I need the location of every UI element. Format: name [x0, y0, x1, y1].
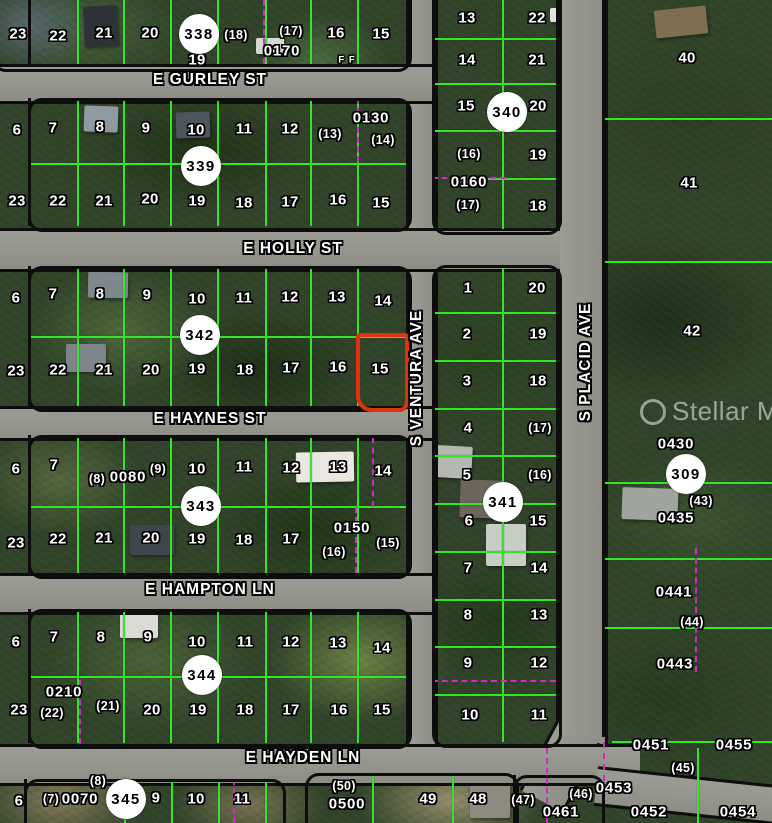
block-number-badge: 343 — [181, 486, 221, 526]
lot-number-label: 7 — [50, 457, 59, 474]
lot-number-label: 13 — [530, 607, 547, 624]
survey-dashed-line — [355, 507, 357, 573]
lot-number-label: 6 — [12, 290, 21, 307]
block-number-badge: 340 — [487, 92, 527, 132]
lot-line — [452, 773, 454, 823]
parcel-id-label: 0080 — [110, 469, 147, 486]
lot-number-label: 4 — [464, 420, 473, 437]
lot-line — [432, 130, 556, 132]
parcel-boundary-line — [28, 609, 31, 743]
lot-number-label: 21 — [95, 25, 112, 42]
lot-line — [357, 0, 359, 64]
lot-number-alt-label: (15) — [376, 536, 399, 550]
lot-number-label: 5 — [463, 467, 472, 484]
lot-number-label: 18 — [235, 532, 252, 549]
lot-number-label: 10 — [188, 461, 205, 478]
lot-number-label: 8 — [464, 607, 473, 624]
lot-line — [432, 38, 556, 40]
lot-number-label: 17 — [282, 360, 299, 377]
lot-number-label: 22 — [49, 193, 66, 210]
lot-number-label: 16 — [329, 359, 346, 376]
lot-number-alt-label: (14) — [371, 133, 394, 147]
lot-line — [602, 558, 772, 560]
lot-line — [432, 408, 556, 410]
lot-number-label: 20 — [141, 25, 158, 42]
lot-number-label: 7 — [464, 560, 473, 577]
lot-number-label: 19 — [189, 702, 206, 719]
lot-number-label: 12 — [282, 634, 299, 651]
lot-line — [432, 694, 556, 696]
roof-patch — [486, 524, 526, 566]
lot-number-label: 20 — [528, 280, 545, 297]
lot-number-label: 19 — [188, 52, 205, 69]
lot-number-label: 15 — [372, 195, 389, 212]
lot-line — [372, 773, 374, 823]
lot-number-label: 11 — [237, 634, 253, 651]
lot-number-label: 17 — [281, 194, 298, 211]
lot-line — [170, 98, 172, 226]
lot-number-label: 18 — [529, 373, 546, 390]
lot-number-label: 40 — [678, 50, 695, 67]
lot-number-label: 10 — [187, 791, 204, 808]
lot-number-label: 20 — [142, 362, 159, 379]
lot-line — [432, 599, 556, 601]
lot-number-label: 20 — [529, 98, 546, 115]
lot-number-label: 8 — [96, 286, 105, 303]
lot-number-label: 6 — [12, 634, 21, 651]
lot-number-label: 8 — [96, 119, 105, 136]
lot-number-label: 22 — [49, 531, 66, 548]
lot-line — [265, 779, 267, 823]
parcel-boundary-line — [24, 779, 27, 823]
lot-number-label: 23 — [8, 193, 25, 210]
lot-number-label: 8 — [97, 629, 106, 646]
lot-number-alt-label: (8) — [90, 774, 106, 788]
lot-number-label: 16 — [329, 192, 346, 209]
lot-number-alt-label: (7) — [43, 792, 59, 806]
lot-number-label: 10 — [461, 707, 478, 724]
lot-number-label: 42 — [683, 323, 700, 340]
lot-number-label: 22 — [49, 28, 66, 45]
lot-number-label: 14 — [374, 463, 391, 480]
lot-line — [77, 98, 79, 226]
lot-number-label: 6 — [12, 461, 21, 478]
lot-number-label: 19 — [529, 326, 546, 343]
lot-number-label: 12 — [282, 460, 299, 477]
street-label-e-hampton-ln: E HAMPTON LN — [145, 581, 275, 599]
parcel-id-label: 0210 — [46, 684, 83, 701]
lot-number-label: 49 — [419, 791, 436, 808]
lot-line — [123, 435, 125, 573]
street-label-s-ventura-ave: S VENTURA AVE — [408, 310, 426, 446]
parcel-id-label: 0430 — [658, 436, 695, 453]
lot-number-alt-label: (17) — [279, 24, 302, 38]
lot-number-label: 15 — [371, 361, 388, 378]
lot-number-label: 23 — [9, 26, 26, 43]
parcel-id-label: 0150 — [334, 520, 371, 537]
lot-number-label: 14 — [530, 560, 547, 577]
block-number-badge: 341 — [483, 482, 523, 522]
lot-number-label: 11 — [236, 459, 252, 476]
lot-number-label: 12 — [530, 655, 547, 672]
lot-number-label: 12 — [281, 121, 298, 138]
lot-line — [432, 551, 556, 553]
parcel-boundary-line — [602, 0, 605, 737]
lot-number-label: 19 — [188, 361, 205, 378]
lot-line — [77, 0, 79, 64]
lot-line — [123, 0, 125, 64]
lot-line — [310, 98, 312, 226]
lot-number-label: 18 — [236, 702, 253, 719]
lot-number-label: 1 — [464, 280, 473, 297]
lot-number-label: 18 — [236, 362, 253, 379]
lot-number-alt-label: (47) — [511, 793, 534, 807]
stellar-mls-logo-icon — [640, 399, 666, 425]
lot-number-label: 9 — [464, 655, 473, 672]
parcel-map-canvas[interactable]: Stellar MLS 2322212019(18)(17)01701615F … — [0, 0, 772, 823]
map-text-label: F F — [338, 55, 355, 66]
lot-number-label: 21 — [95, 362, 112, 379]
lot-number-label: 9 — [152, 790, 161, 807]
lot-line — [123, 98, 125, 226]
lot-number-label: 13 — [329, 459, 346, 476]
lot-number-label: 9 — [143, 287, 152, 304]
lot-number-label: 18 — [529, 198, 546, 215]
lot-line — [310, 435, 312, 573]
parcel-id-label: 0130 — [353, 110, 390, 127]
lot-number-alt-label: (16) — [457, 147, 480, 161]
lot-number-label: 23 — [10, 702, 27, 719]
lot-number-label: 19 — [188, 531, 205, 548]
street-label-e-gurley-st: E GURLEY ST — [153, 71, 267, 89]
parcel-id-label: 0453 — [596, 780, 633, 797]
lot-number-alt-label: (16) — [322, 545, 345, 559]
lot-number-label: 22 — [49, 362, 66, 379]
lot-number-label: 15 — [372, 26, 389, 43]
lot-number-alt-label: (8) — [89, 472, 105, 486]
street-label-e-haynes-st: E HAYNES ST — [154, 410, 267, 428]
parcel-id-label: 0452 — [631, 804, 668, 821]
lot-number-alt-label: (46) — [569, 787, 592, 801]
lot-line — [602, 118, 772, 120]
lot-number-label: 18 — [235, 195, 252, 212]
lot-line — [697, 748, 699, 823]
lot-number-label: 17 — [282, 531, 299, 548]
lot-number-label: 22 — [528, 10, 545, 27]
lot-line — [432, 312, 556, 314]
block-number-badge: 339 — [181, 146, 221, 186]
survey-dashed-line — [432, 680, 556, 682]
lot-line — [218, 779, 220, 823]
lot-number-alt-label: (16) — [528, 468, 551, 482]
lot-number-label: 14 — [374, 293, 391, 310]
lot-number-label: 9 — [142, 120, 151, 137]
lot-number-label: 15 — [529, 513, 546, 530]
lot-line — [432, 455, 556, 457]
block-number-badge: 309 — [666, 454, 706, 494]
lot-number-alt-label: (17) — [528, 421, 551, 435]
lot-line — [170, 435, 172, 573]
lot-number-label: 15 — [457, 98, 474, 115]
lot-number-label: 14 — [373, 640, 390, 657]
parcel-id-label: 0160 — [451, 174, 488, 191]
survey-dashed-line — [695, 548, 697, 672]
block-number-badge: 344 — [182, 655, 222, 695]
lot-number-alt-label: (13) — [318, 127, 341, 141]
street-label-s-placid-ave: S PLACID AVE — [577, 303, 595, 422]
lot-number-label: 19 — [529, 147, 546, 164]
lot-number-label: 2 — [463, 326, 472, 343]
street-label-e-hayden-ln: E HAYDEN LN — [246, 749, 361, 767]
lot-line — [310, 0, 312, 64]
block-number-badge: 345 — [106, 779, 146, 819]
lot-number-label: 48 — [469, 791, 486, 808]
lot-number-label: 15 — [373, 702, 390, 719]
block-number-badge: 338 — [179, 14, 219, 54]
lot-number-label: 13 — [328, 289, 345, 306]
lot-number-label: 3 — [463, 373, 472, 390]
lot-line — [602, 261, 772, 263]
lot-line — [432, 83, 556, 85]
lot-number-label: 10 — [188, 634, 205, 651]
parcel-id-label: 0435 — [658, 510, 695, 527]
lot-number-label: 10 — [187, 122, 204, 139]
parcel-id-label: 0443 — [657, 656, 694, 673]
parcel-boundary-line — [28, 98, 31, 226]
lot-number-label: 10 — [188, 291, 205, 308]
lot-line — [265, 435, 267, 573]
roof-patch — [654, 5, 709, 38]
lot-number-label: 13 — [458, 10, 475, 27]
lot-number-label: 21 — [95, 530, 112, 547]
lot-line — [432, 360, 556, 362]
lot-line — [77, 435, 79, 573]
lot-number-label: 7 — [50, 629, 59, 646]
lot-number-label: 41 — [680, 175, 697, 192]
lot-number-alt-label: (9) — [150, 462, 166, 476]
lot-number-alt-label: (44) — [680, 615, 703, 629]
lot-number-alt-label: (18) — [224, 28, 247, 42]
lot-number-label: 11 — [236, 121, 252, 138]
parcel-boundary-line — [28, 0, 31, 64]
parcel-id-label: 0461 — [543, 804, 580, 821]
lot-line — [171, 779, 173, 823]
lot-number-label: 19 — [188, 193, 205, 210]
lot-number-alt-label: (43) — [689, 494, 712, 508]
lot-number-label: 13 — [329, 635, 346, 652]
street-label-e-holly-st: E HOLLY ST — [243, 240, 343, 258]
lot-number-label: 11 — [236, 290, 252, 307]
lot-number-label: 14 — [458, 52, 475, 69]
watermark-text: Stellar MLS — [672, 396, 772, 427]
lot-number-label: 21 — [528, 52, 545, 69]
lot-line — [357, 435, 359, 573]
lot-number-label: 20 — [141, 191, 158, 208]
parcel-id-label: 0170 — [264, 43, 301, 60]
lot-number-label: 12 — [281, 289, 298, 306]
lot-number-label: 7 — [49, 120, 58, 137]
lot-number-alt-label: (50) — [332, 779, 355, 793]
lot-number-label: 6 — [13, 122, 22, 139]
lot-number-label: 20 — [142, 530, 159, 547]
lot-number-label: 23 — [7, 363, 24, 380]
parcel-boundary-line — [28, 266, 31, 406]
survey-dashed-line — [357, 98, 359, 162]
lot-number-alt-label: (22) — [40, 706, 63, 720]
lot-number-label: 6 — [465, 513, 474, 530]
lot-number-label: 16 — [330, 702, 347, 719]
lot-line — [432, 646, 556, 648]
parcel-id-label: 0451 — [633, 737, 670, 754]
watermark: Stellar MLS — [640, 396, 772, 427]
lot-number-label: 20 — [143, 702, 160, 719]
lot-number-label: 23 — [7, 535, 24, 552]
lot-number-label: 21 — [95, 193, 112, 210]
parcel-id-label: 0070 — [62, 791, 99, 808]
lot-line — [170, 0, 172, 64]
lot-line — [265, 98, 267, 226]
lot-number-label: 7 — [49, 286, 58, 303]
parcel-id-label: 0441 — [656, 584, 693, 601]
lot-number-label: 11 — [234, 791, 250, 808]
lot-number-label: 6 — [15, 793, 24, 810]
block-number-badge: 342 — [180, 315, 220, 355]
parcel-id-label: 0455 — [716, 737, 753, 754]
lot-number-label: 11 — [531, 707, 547, 724]
lot-number-alt-label: (45) — [671, 761, 694, 775]
lot-number-alt-label: (21) — [96, 699, 119, 713]
lot-number-label: 9 — [144, 629, 153, 646]
lot-number-alt-label: (17) — [456, 198, 479, 212]
lot-number-label: 16 — [327, 25, 344, 42]
lot-number-label: 17 — [282, 702, 299, 719]
parcel-boundary-line — [28, 435, 31, 573]
parcel-id-label: 0500 — [329, 796, 366, 813]
parcel-id-label: 0454 — [720, 804, 757, 821]
